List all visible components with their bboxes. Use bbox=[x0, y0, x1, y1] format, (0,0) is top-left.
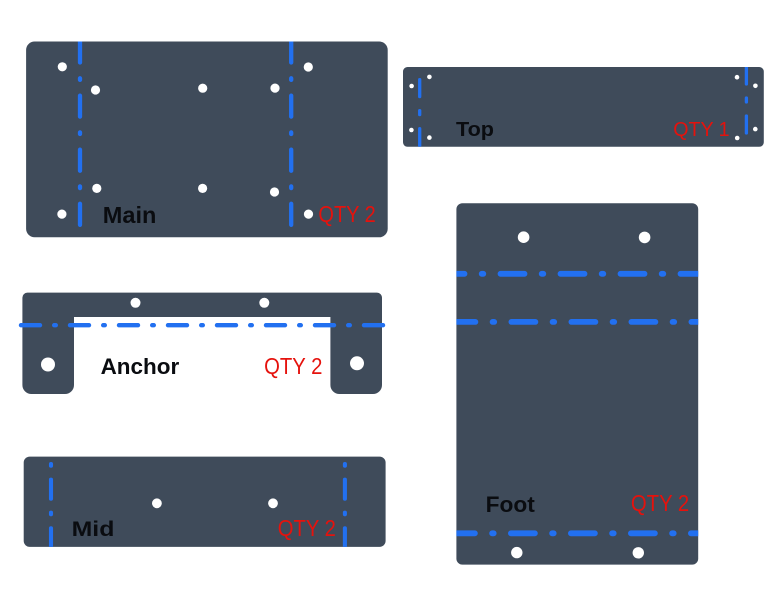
svg-text:Main: Main bbox=[103, 202, 157, 228]
svg-text:QTY 2: QTY 2 bbox=[318, 201, 375, 227]
svg-text:Mid: Mid bbox=[72, 517, 115, 541]
svg-text:Top: Top bbox=[456, 118, 494, 141]
svg-text:QTY 2: QTY 2 bbox=[278, 515, 336, 541]
svg-text:Anchor: Anchor bbox=[101, 354, 180, 379]
svg-text:QTY 2: QTY 2 bbox=[264, 353, 322, 379]
svg-text:QTY 1: QTY 1 bbox=[673, 118, 729, 141]
svg-text:Foot: Foot bbox=[486, 492, 536, 517]
svg-text:QTY 2: QTY 2 bbox=[631, 490, 689, 516]
